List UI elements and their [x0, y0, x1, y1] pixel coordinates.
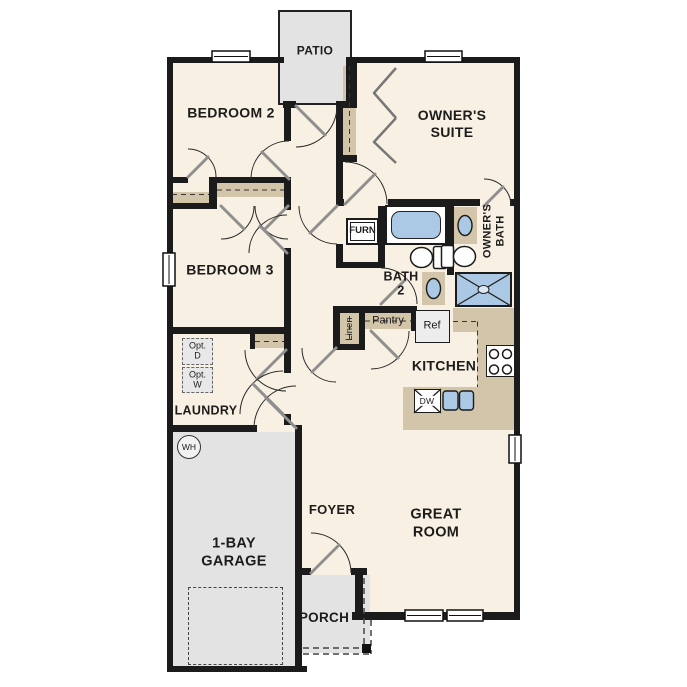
wall [346, 57, 357, 108]
wall [336, 101, 343, 206]
garage-door-dashed [188, 587, 283, 665]
wall [336, 155, 357, 162]
wall [167, 57, 284, 63]
wall [172, 203, 209, 209]
wall [514, 57, 520, 620]
wall [209, 177, 217, 209]
fixture-label-dishwasher: DW [419, 396, 436, 406]
bedroom3-closet-shelf [217, 183, 284, 197]
wall [355, 575, 363, 612]
room-label-laundry: LAUNDRY [175, 403, 238, 418]
room-label-bath-2: BATH 2 [384, 270, 419, 298]
wall [284, 101, 291, 141]
wall [167, 425, 257, 432]
wall [167, 57, 173, 672]
wall [302, 568, 311, 575]
wall [378, 206, 385, 268]
wall [447, 199, 454, 275]
fixture-label-opt-washer: Opt. W [189, 370, 206, 391]
wall [351, 568, 367, 575]
shower-icon [455, 272, 512, 307]
wall [352, 612, 520, 620]
room-label-kitchen: KITCHEN [412, 357, 476, 374]
room-label-foyer: FOYER [309, 502, 355, 518]
owners-vanity [453, 207, 477, 244]
kitchen-counter-top [453, 308, 514, 332]
wall [295, 425, 302, 672]
room-label-bedroom-2: BEDROOM 2 [187, 104, 275, 121]
fixture-label-water-heater: WH [182, 442, 196, 452]
wall [348, 57, 520, 63]
room-label-patio: PATIO [297, 44, 333, 59]
fixture-label-pantry: Pantry [372, 314, 404, 327]
coat-closet-shelf [255, 334, 284, 348]
fixture-label-furnace: FURN [349, 225, 375, 237]
room-label-porch: PORCH [299, 610, 349, 626]
room-label-great-room: GREAT ROOM [410, 506, 461, 541]
room-label-bedroom-3: BEDROOM 3 [186, 261, 274, 278]
room-label-owners-suite: OWNER'S SUITE [418, 107, 486, 141]
wall [250, 334, 255, 349]
fixture-label-opt-dryer: Opt. D [189, 341, 206, 362]
wall [284, 248, 291, 334]
wall [167, 666, 307, 672]
fixture-label-refrigerator: Ref [423, 319, 440, 332]
wall [359, 313, 365, 350]
wall [217, 177, 291, 183]
wall [167, 327, 291, 334]
wall [284, 177, 291, 210]
wall [284, 414, 291, 425]
room-label-garage: 1-BAY GARAGE [201, 535, 266, 570]
floor-plan: PATIO BEDROOM 2 OWNER'S SUITE BEDROOM 3 … [0, 0, 687, 687]
wall [172, 177, 188, 183]
room-label-owners-bath: OWNER'S BATH [482, 204, 509, 258]
wall [333, 306, 417, 313]
wall [336, 199, 344, 206]
wall [510, 199, 515, 206]
bedroom2-closet-shelf [172, 192, 209, 203]
bathtub-basin-icon [391, 211, 441, 239]
wall [284, 334, 291, 373]
bath2-vanity [422, 272, 445, 305]
stove-icon [486, 345, 515, 377]
fixture-label-linen: Linen [344, 317, 356, 340]
